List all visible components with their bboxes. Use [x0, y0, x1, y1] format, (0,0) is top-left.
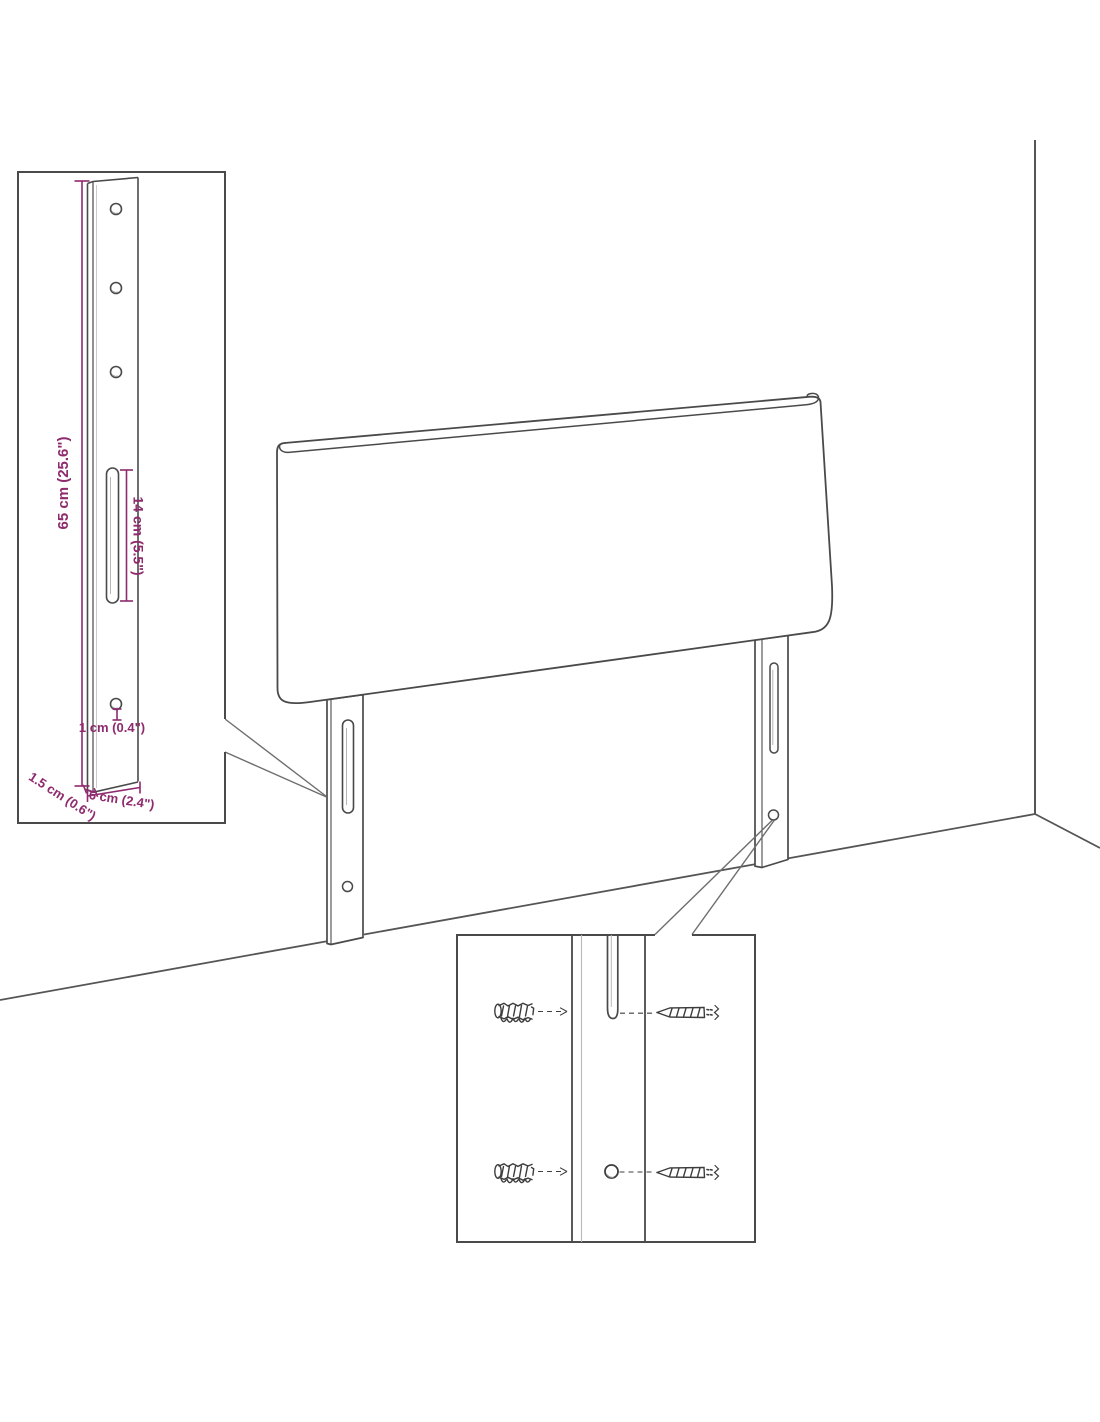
floor-line-right [1035, 814, 1100, 848]
bracket-height-label: 65 cm (25.6") [55, 436, 72, 529]
detail-inset-bracket: 65 cm (25.6") 14 cm (5.5") 1 cm (0.4") 1… [18, 172, 225, 823]
left-leg-screw-hole [343, 882, 353, 892]
slot-length-label: 14 cm (5.5") [131, 496, 147, 575]
left-leg [327, 695, 363, 945]
left-leg-slot [343, 720, 354, 813]
hole-offset-label: 1 cm (0.4") [79, 720, 145, 735]
right-leg-screw-hole [769, 810, 779, 820]
inset-mounting-border [457, 935, 755, 1242]
right-leg-slot [770, 663, 778, 753]
headboard [277, 393, 832, 944]
headboard-panel [277, 397, 832, 704]
detail-inset-mounting [457, 935, 755, 1242]
assembly-diagram: 65 cm (25.6") 14 cm (5.5") 1 cm (0.4") 1… [0, 0, 1100, 1422]
callout-lines-left [225, 719, 327, 797]
